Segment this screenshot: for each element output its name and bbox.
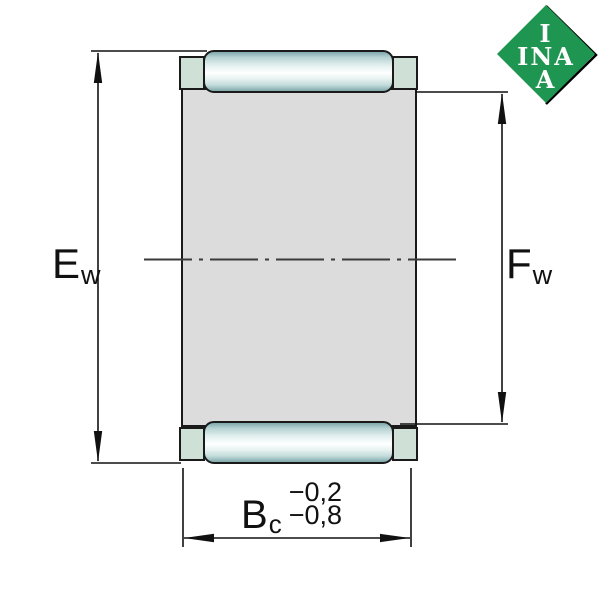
ew-symbol: E	[52, 240, 80, 287]
cage-rim-top-right	[392, 56, 418, 90]
fw-symbol: F	[506, 240, 532, 287]
needle-roller-top	[203, 50, 394, 93]
bc-arrow-left	[184, 534, 214, 542]
cage-rim-top-left	[179, 56, 205, 90]
cage-rim-bottom-left	[179, 427, 205, 461]
logo-text-line3: A	[535, 65, 557, 94]
needle-roller-bottom	[203, 421, 394, 464]
fw-dimension-label: Fw	[506, 243, 552, 285]
bc-tolerance-lower: −0,8	[289, 504, 342, 527]
cage-body	[181, 88, 417, 427]
bc-dimension-label: Bc −0,2 −0,8	[241, 481, 342, 536]
bearing-technical-drawing: Ew Fw Bc −0,2 −0,8 I INA A	[0, 0, 600, 600]
bc-tolerance-stack: −0,2 −0,8	[289, 481, 342, 527]
fw-subscript: w	[533, 260, 553, 290]
bc-arrow-right	[380, 534, 410, 542]
ina-logo: I INA A	[494, 2, 598, 106]
ew-arrow-down	[94, 431, 102, 462]
bc-symbol: B	[241, 493, 268, 537]
bc-symbol-group: Bc	[241, 498, 282, 536]
ew-arrow-up	[94, 52, 102, 83]
ew-dimension-label: Ew	[52, 243, 101, 285]
fw-arrow-down	[498, 392, 506, 423]
cage-rim-bottom-right	[392, 427, 418, 461]
bc-subscript: c	[269, 509, 282, 539]
ew-subscript: w	[81, 260, 101, 290]
